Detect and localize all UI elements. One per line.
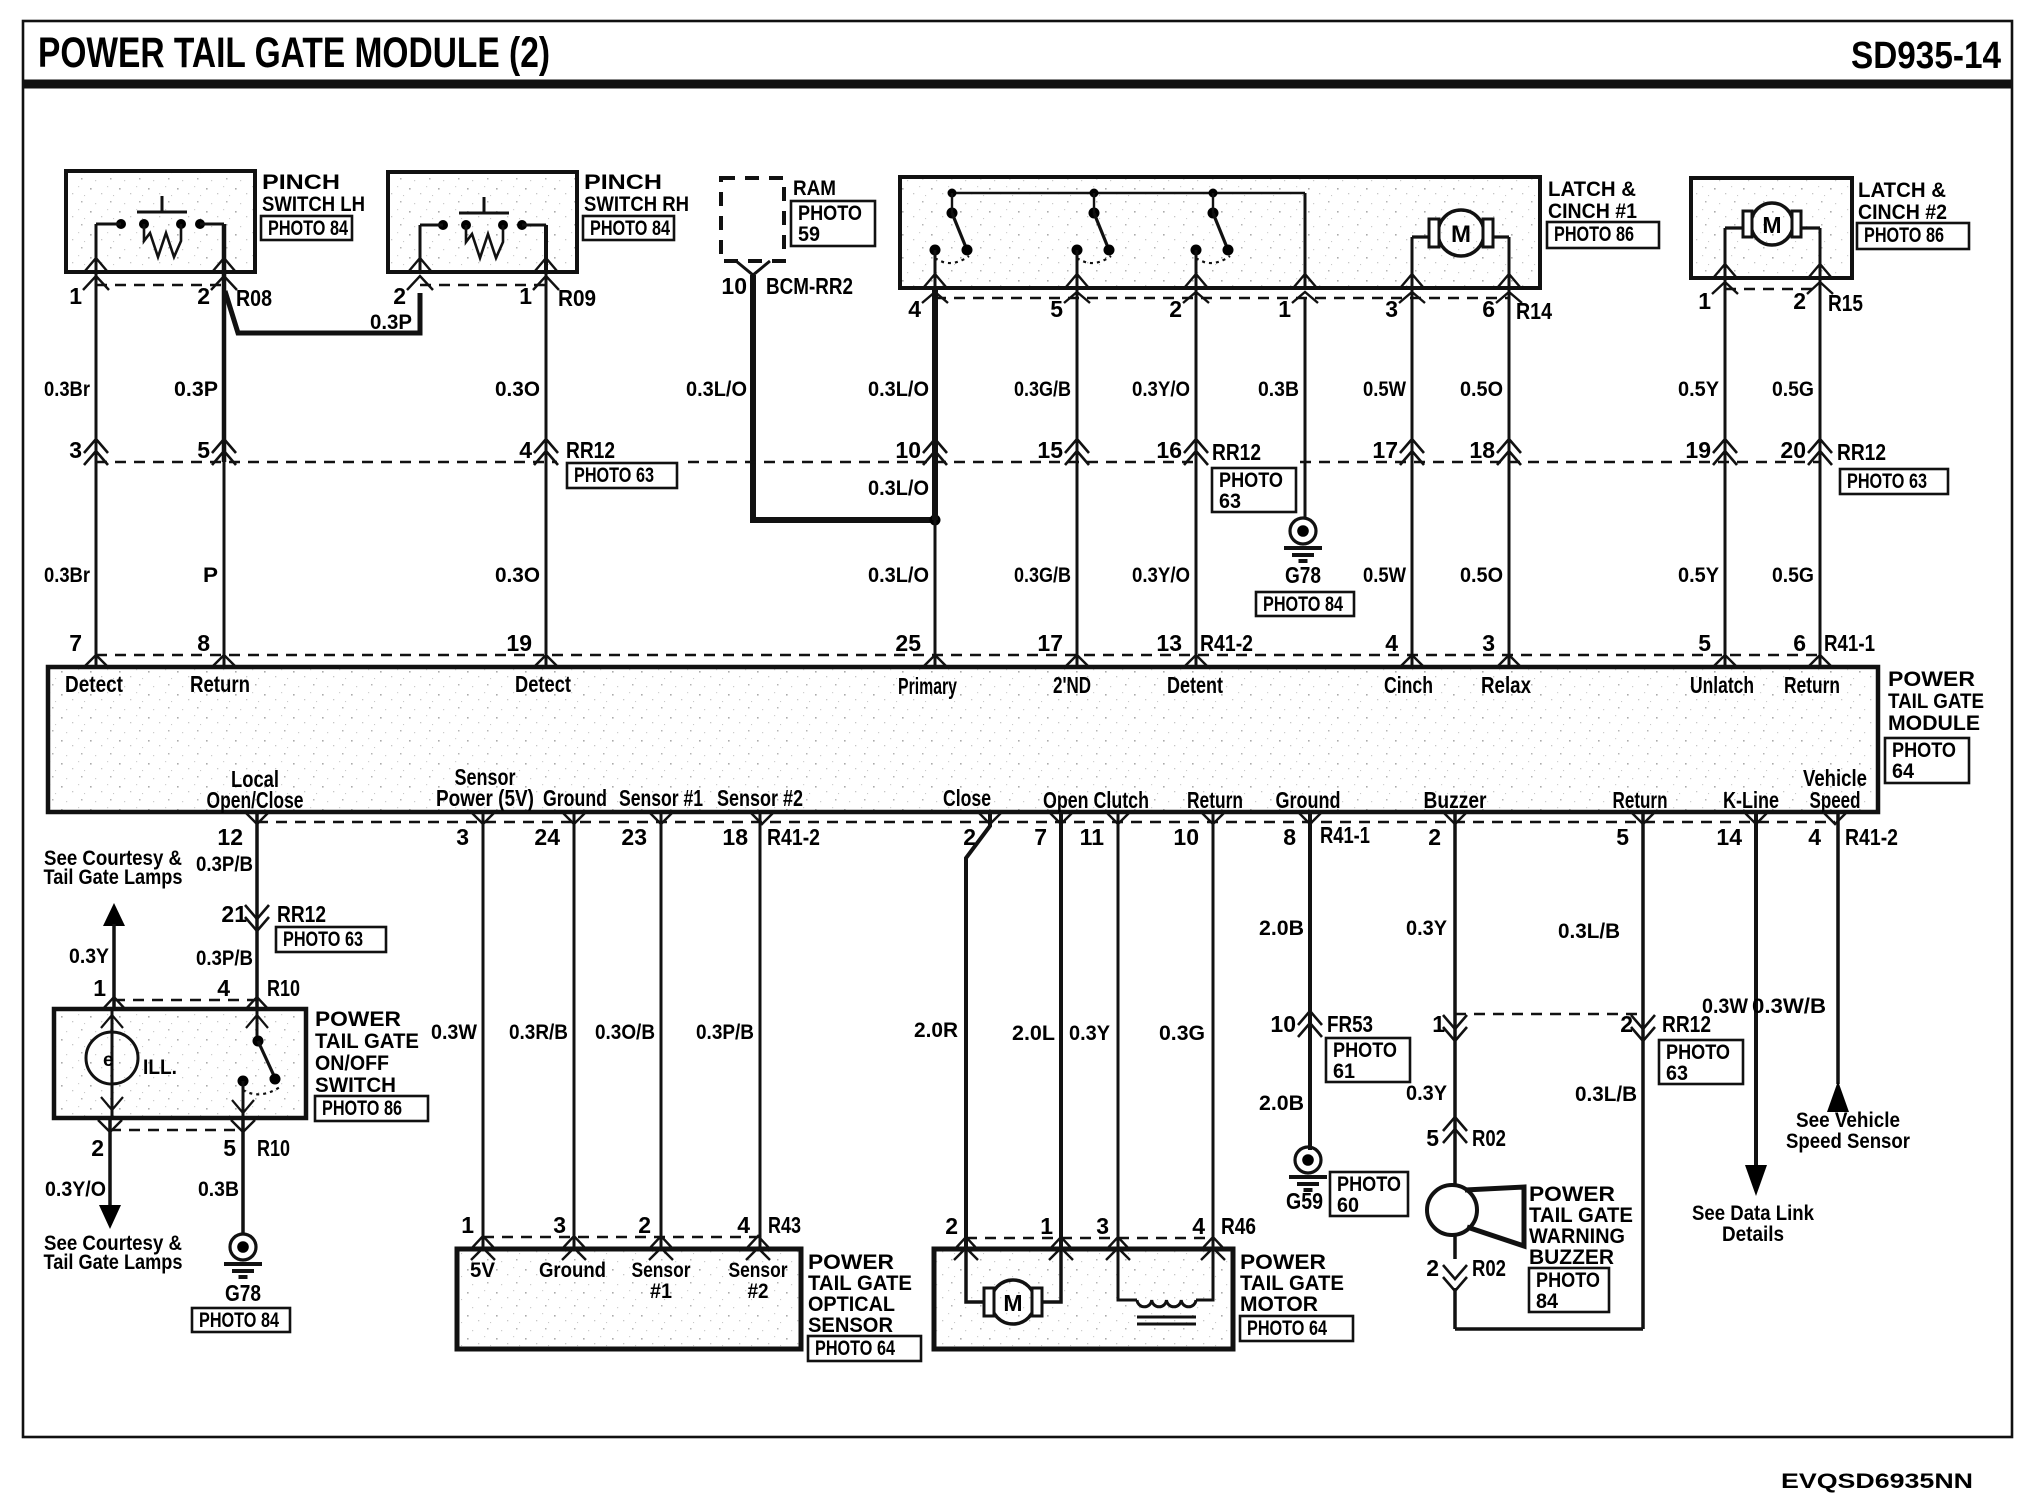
svg-text:7: 7 xyxy=(1034,824,1047,850)
svg-text:0.5Y: 0.5Y xyxy=(1678,563,1719,587)
svg-text:PHOTO 63: PHOTO 63 xyxy=(283,927,363,951)
svg-text:PHOTO 84: PHOTO 84 xyxy=(1263,592,1343,616)
svg-text:PHOTO 63: PHOTO 63 xyxy=(1847,469,1927,493)
svg-text:Tail Gate Lamps: Tail Gate Lamps xyxy=(44,1250,183,1274)
svg-text:6: 6 xyxy=(1793,630,1806,656)
svg-text:PHOTO 84: PHOTO 84 xyxy=(268,216,348,240)
svg-text:0.3P: 0.3P xyxy=(174,377,218,401)
svg-text:4: 4 xyxy=(217,975,230,1001)
svg-text:4: 4 xyxy=(1808,824,1821,850)
svg-text:0.3L/O: 0.3L/O xyxy=(868,476,929,500)
svg-text:0.3Br: 0.3Br xyxy=(44,563,91,587)
svg-text:2: 2 xyxy=(1793,288,1806,314)
svg-text:PINCH: PINCH xyxy=(584,170,662,194)
svg-text:PHOTO 64: PHOTO 64 xyxy=(815,1336,895,1360)
svg-text:R10: R10 xyxy=(267,975,300,1001)
svg-text:Power (5V): Power (5V) xyxy=(436,785,534,811)
svg-text:2: 2 xyxy=(945,1213,958,1239)
svg-text:Primary: Primary xyxy=(898,673,957,699)
svg-text:Speed Sensor: Speed Sensor xyxy=(1786,1129,1911,1153)
svg-text:Speed: Speed xyxy=(1810,787,1861,813)
svg-text:0.3L/O: 0.3L/O xyxy=(868,377,929,401)
svg-text:12: 12 xyxy=(217,824,243,850)
svg-text:Tail Gate Lamps: Tail Gate Lamps xyxy=(44,865,183,889)
svg-text:2.0B: 2.0B xyxy=(1259,916,1304,940)
svg-text:0.3W/B: 0.3W/B xyxy=(1752,994,1826,1018)
svg-text:5: 5 xyxy=(1616,824,1629,850)
svg-text:0.3G/B: 0.3G/B xyxy=(1014,563,1071,587)
svg-text:RAM: RAM xyxy=(793,176,836,200)
svg-text:R41-2: R41-2 xyxy=(767,824,820,850)
svg-text:FR53: FR53 xyxy=(1327,1011,1373,1037)
svg-text:R41-2: R41-2 xyxy=(1845,824,1898,850)
svg-text:4: 4 xyxy=(1385,630,1398,656)
svg-text:0.5O: 0.5O xyxy=(1460,377,1503,401)
svg-text:84: 84 xyxy=(1536,1289,1558,1313)
svg-text:Relax: Relax xyxy=(1481,672,1531,698)
svg-text:0.3P/B: 0.3P/B xyxy=(196,946,253,970)
svg-text:PHOTO 84: PHOTO 84 xyxy=(199,1308,279,1332)
svg-text:POWER TAIL GATE MODULE (2): POWER TAIL GATE MODULE (2) xyxy=(38,29,550,77)
svg-text:2: 2 xyxy=(1169,296,1182,322)
svg-text:R09: R09 xyxy=(558,285,596,311)
svg-text:0.3B: 0.3B xyxy=(198,1177,239,1201)
svg-text:4: 4 xyxy=(519,437,532,463)
svg-text:2: 2 xyxy=(1428,824,1441,850)
svg-text:TAIL GATE: TAIL GATE xyxy=(315,1029,419,1053)
svg-text:2: 2 xyxy=(197,283,210,309)
svg-text:R02: R02 xyxy=(1472,1255,1506,1281)
svg-text:1: 1 xyxy=(519,283,532,309)
svg-text:Detect: Detect xyxy=(515,671,571,697)
svg-text:0.3L/O: 0.3L/O xyxy=(868,563,929,587)
svg-text:59: 59 xyxy=(798,222,820,246)
svg-text:10: 10 xyxy=(721,273,747,299)
svg-text:SD935-14: SD935-14 xyxy=(1851,35,2001,77)
svg-text:G59: G59 xyxy=(1286,1188,1323,1214)
svg-text:3: 3 xyxy=(1385,296,1398,322)
svg-text:0.3Y: 0.3Y xyxy=(69,944,109,968)
svg-text:CINCH #2: CINCH #2 xyxy=(1858,200,1947,224)
svg-text:EVQSD6935NN: EVQSD6935NN xyxy=(1781,1469,1973,1493)
svg-text:Sensor #1: Sensor #1 xyxy=(619,785,703,811)
svg-text:Details: Details xyxy=(1722,1222,1784,1246)
svg-text:Detent: Detent xyxy=(1167,672,1223,698)
svg-text:0.3L/B: 0.3L/B xyxy=(1558,919,1620,943)
svg-text:RR12: RR12 xyxy=(1837,439,1886,465)
svg-text:2: 2 xyxy=(1620,1011,1633,1037)
svg-text:R15: R15 xyxy=(1828,290,1863,316)
svg-text:0.3O: 0.3O xyxy=(495,563,540,587)
svg-text:R46: R46 xyxy=(1221,1213,1256,1239)
svg-text:PHOTO 86: PHOTO 86 xyxy=(1554,222,1634,246)
svg-text:3: 3 xyxy=(553,1212,566,1238)
svg-text:BCM-RR2: BCM-RR2 xyxy=(766,273,853,299)
svg-text:TAIL GATE: TAIL GATE xyxy=(1888,689,1984,713)
svg-text:M: M xyxy=(1003,1290,1022,1316)
svg-text:0.3Br: 0.3Br xyxy=(44,377,91,401)
svg-text:1: 1 xyxy=(1698,288,1711,314)
svg-text:0.3B: 0.3B xyxy=(1258,377,1299,401)
svg-text:2.0R: 2.0R xyxy=(914,1018,958,1042)
svg-text:Ground: Ground xyxy=(539,1258,606,1282)
svg-text:17: 17 xyxy=(1037,630,1063,656)
svg-text:1: 1 xyxy=(69,283,82,309)
svg-text:0.3P/B: 0.3P/B xyxy=(196,852,253,876)
svg-text:PINCH: PINCH xyxy=(262,170,340,194)
svg-text:Detect: Detect xyxy=(65,671,123,697)
svg-text:2'ND: 2'ND xyxy=(1053,672,1091,698)
svg-text:LATCH &: LATCH & xyxy=(1548,177,1636,201)
svg-text:PHOTO 63: PHOTO 63 xyxy=(574,463,654,487)
svg-text:P: P xyxy=(203,563,218,587)
svg-text:M: M xyxy=(1451,221,1471,248)
svg-text:8: 8 xyxy=(197,630,210,656)
svg-text:2.0B: 2.0B xyxy=(1259,1091,1304,1115)
svg-text:RR12: RR12 xyxy=(566,437,615,463)
svg-text:11: 11 xyxy=(1080,824,1105,850)
svg-text:R41-1: R41-1 xyxy=(1320,822,1370,848)
svg-text:4: 4 xyxy=(1192,1213,1205,1239)
svg-text:0.3Y/O: 0.3Y/O xyxy=(1132,377,1190,401)
svg-text:2: 2 xyxy=(1426,1255,1439,1281)
svg-text:0.3Y/O: 0.3Y/O xyxy=(1132,563,1190,587)
svg-text:R41-1: R41-1 xyxy=(1824,630,1875,656)
svg-text:0.5G: 0.5G xyxy=(1772,377,1814,401)
svg-text:R10: R10 xyxy=(257,1135,290,1161)
svg-text:Open/Close: Open/Close xyxy=(207,787,304,813)
svg-text:3: 3 xyxy=(456,824,469,850)
svg-text:0.3L/O: 0.3L/O xyxy=(686,377,747,401)
svg-text:7: 7 xyxy=(69,630,82,656)
svg-text:0.3Y: 0.3Y xyxy=(1069,1021,1110,1045)
svg-text:5: 5 xyxy=(223,1135,236,1161)
svg-text:CINCH #1: CINCH #1 xyxy=(1548,199,1637,223)
svg-text:PHOTO 86: PHOTO 86 xyxy=(322,1096,402,1120)
svg-text:63: 63 xyxy=(1219,489,1241,513)
svg-text:18: 18 xyxy=(1469,437,1495,463)
svg-text:60: 60 xyxy=(1337,1193,1359,1217)
svg-text:RR12: RR12 xyxy=(277,901,326,927)
svg-text:10: 10 xyxy=(1270,1011,1296,1037)
svg-text:1: 1 xyxy=(461,1212,474,1238)
svg-text:19: 19 xyxy=(506,630,532,656)
svg-text:Return: Return xyxy=(190,671,250,697)
svg-text:0.3O/B: 0.3O/B xyxy=(595,1020,655,1044)
svg-text:0.3W: 0.3W xyxy=(1702,994,1749,1018)
svg-text:0.3Y/O: 0.3Y/O xyxy=(45,1177,106,1201)
svg-text:64: 64 xyxy=(1892,759,1914,783)
svg-text:0.3W: 0.3W xyxy=(431,1020,478,1044)
svg-text:23: 23 xyxy=(621,824,647,850)
svg-text:Unlatch: Unlatch xyxy=(1690,672,1754,698)
svg-text:63: 63 xyxy=(1666,1061,1688,1085)
svg-text:25: 25 xyxy=(895,630,921,656)
svg-text:SWITCH LH: SWITCH LH xyxy=(262,192,365,216)
svg-text:SWITCH RH: SWITCH RH xyxy=(584,192,689,216)
svg-text:0.3Y: 0.3Y xyxy=(1406,1081,1447,1105)
svg-text:0.5W: 0.5W xyxy=(1363,377,1407,401)
svg-text:1: 1 xyxy=(93,975,106,1001)
svg-text:Ground: Ground xyxy=(1276,787,1341,813)
svg-text:RR12: RR12 xyxy=(1212,439,1261,465)
svg-text:0.3O: 0.3O xyxy=(495,377,540,401)
svg-text:PHOTO 84: PHOTO 84 xyxy=(590,216,670,240)
svg-text:Return: Return xyxy=(1187,787,1243,813)
svg-text:10: 10 xyxy=(895,437,921,463)
svg-text:R08: R08 xyxy=(236,285,272,311)
svg-text:MOTOR: MOTOR xyxy=(1240,1292,1318,1316)
svg-text:ON/OFF: ON/OFF xyxy=(315,1051,389,1075)
svg-text:18: 18 xyxy=(722,824,748,850)
svg-text:G78: G78 xyxy=(1285,562,1321,588)
svg-text:LATCH &: LATCH & xyxy=(1858,178,1946,202)
svg-text:1: 1 xyxy=(1040,1213,1053,1239)
svg-text:3: 3 xyxy=(1482,630,1495,656)
svg-text:Cinch: Cinch xyxy=(1384,672,1433,698)
svg-text:8: 8 xyxy=(1283,824,1296,850)
svg-text:0.5Y: 0.5Y xyxy=(1678,377,1719,401)
svg-text:M: M xyxy=(1762,212,1781,238)
svg-text:0.5G: 0.5G xyxy=(1772,563,1814,587)
svg-text:2: 2 xyxy=(638,1212,651,1238)
svg-text:0.3R/B: 0.3R/B xyxy=(509,1020,568,1044)
svg-text:Open Clutch: Open Clutch xyxy=(1043,787,1149,813)
svg-text:Return: Return xyxy=(1784,672,1840,698)
svg-text:4: 4 xyxy=(908,296,921,322)
svg-text:2: 2 xyxy=(393,283,406,309)
svg-text:MODULE: MODULE xyxy=(1888,711,1980,735)
svg-text:10: 10 xyxy=(1173,824,1199,850)
svg-text:19: 19 xyxy=(1685,437,1711,463)
svg-text:0.5W: 0.5W xyxy=(1363,563,1407,587)
svg-text:R14: R14 xyxy=(1516,298,1552,324)
svg-text:2.0L: 2.0L xyxy=(1012,1021,1055,1045)
svg-text:0.3P: 0.3P xyxy=(370,310,412,334)
svg-text:5V: 5V xyxy=(470,1258,496,1282)
svg-text:21: 21 xyxy=(221,901,247,927)
svg-text:6: 6 xyxy=(1482,296,1495,322)
svg-text:Close: Close xyxy=(943,785,991,811)
svg-text:POWER: POWER xyxy=(315,1007,401,1031)
svg-text:G78: G78 xyxy=(225,1280,261,1306)
svg-text:3: 3 xyxy=(69,437,82,463)
svg-text:Sensor #2: Sensor #2 xyxy=(717,785,803,811)
svg-text:R43: R43 xyxy=(768,1212,801,1238)
svg-text:POWER: POWER xyxy=(1888,667,1975,691)
svg-text:#1: #1 xyxy=(650,1279,672,1303)
svg-text:5: 5 xyxy=(197,437,210,463)
svg-text:2: 2 xyxy=(91,1135,104,1161)
svg-text:ILL.: ILL. xyxy=(143,1055,177,1079)
svg-text:1: 1 xyxy=(1278,296,1291,322)
svg-text:SWITCH: SWITCH xyxy=(315,1073,396,1097)
svg-text:16: 16 xyxy=(1156,437,1182,463)
svg-text:0.5O: 0.5O xyxy=(1460,563,1503,587)
svg-text:#2: #2 xyxy=(748,1279,769,1303)
svg-text:R41-2: R41-2 xyxy=(1200,630,1253,656)
svg-text:BUZZER: BUZZER xyxy=(1529,1245,1614,1269)
svg-text:0.3L/B: 0.3L/B xyxy=(1575,1082,1637,1106)
svg-text:24: 24 xyxy=(534,824,560,850)
svg-text:Buzzer: Buzzer xyxy=(1424,787,1487,813)
svg-text:5: 5 xyxy=(1426,1125,1439,1151)
svg-text:e: e xyxy=(103,1050,114,1071)
svg-text:Return: Return xyxy=(1613,787,1668,813)
svg-text:5: 5 xyxy=(1698,630,1711,656)
svg-text:0.3Y: 0.3Y xyxy=(1406,916,1447,940)
svg-text:PHOTO 64: PHOTO 64 xyxy=(1247,1316,1327,1340)
svg-text:13: 13 xyxy=(1156,630,1182,656)
svg-text:1: 1 xyxy=(1432,1011,1445,1037)
svg-text:61: 61 xyxy=(1333,1059,1355,1083)
svg-text:PHOTO 86: PHOTO 86 xyxy=(1864,223,1944,247)
svg-text:15: 15 xyxy=(1037,437,1063,463)
svg-text:5: 5 xyxy=(1050,296,1063,322)
svg-text:14: 14 xyxy=(1716,824,1742,850)
svg-text:K-Line: K-Line xyxy=(1723,787,1779,813)
svg-text:R02: R02 xyxy=(1472,1125,1506,1151)
svg-text:SENSOR: SENSOR xyxy=(808,1313,893,1337)
svg-text:Ground: Ground xyxy=(543,785,607,811)
svg-text:4: 4 xyxy=(737,1212,750,1238)
svg-text:3: 3 xyxy=(1096,1213,1109,1239)
svg-text:17: 17 xyxy=(1372,437,1398,463)
svg-text:0.3G/B: 0.3G/B xyxy=(1014,377,1071,401)
svg-text:20: 20 xyxy=(1780,437,1806,463)
svg-text:0.3P/B: 0.3P/B xyxy=(696,1020,754,1044)
svg-text:0.3G: 0.3G xyxy=(1159,1021,1205,1045)
